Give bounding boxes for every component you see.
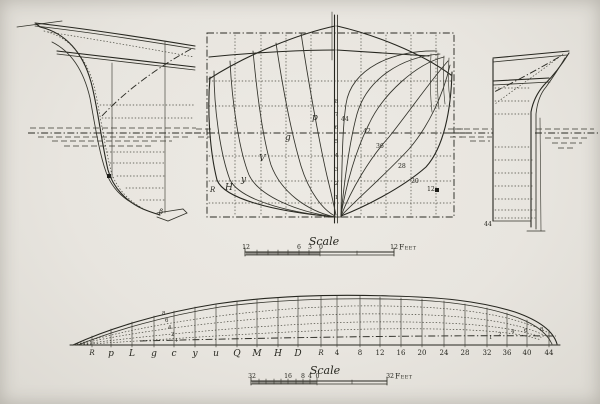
scale-tick-label: 0 — [316, 373, 320, 380]
station-label: Q — [233, 349, 241, 359]
waterline-figure: 6 — [165, 318, 169, 324]
station-label: R — [317, 349, 324, 357]
waterline-figure: 6 — [524, 328, 528, 334]
bow-forefoot-label: β — [158, 208, 163, 216]
waterline-figure: 8 — [540, 327, 544, 333]
centerline-tick: 6 — [335, 125, 339, 131]
waterline-figure: + — [174, 338, 179, 344]
half-breadth-scale-bar: Scale 32 16 8 4 0 32 Feet — [248, 364, 413, 385]
scale-title: Scale — [309, 235, 340, 248]
station-label: p — [108, 349, 114, 359]
section-label: 20 — [411, 178, 419, 185]
scale-unit-label: Feet — [399, 243, 417, 252]
scale-tick-label: 3 — [308, 244, 312, 251]
station-label: c — [171, 349, 176, 359]
station-label: L — [128, 349, 135, 359]
station-label: 32 — [483, 349, 492, 357]
scale-tick-label: 12 — [242, 244, 250, 251]
section-label: p — [312, 113, 318, 123]
reference-dot — [107, 174, 111, 178]
bow-profile-view: β — [17, 21, 197, 221]
scale-tick-label: 0 — [319, 244, 323, 251]
scale-end-label: 32 — [386, 373, 394, 380]
station-label: 44 — [545, 349, 554, 357]
waterline-figure: 2 — [498, 332, 501, 338]
section-label: 42 — [363, 128, 371, 135]
station-label: 8 — [358, 349, 362, 357]
station-label: 36 — [503, 349, 512, 357]
lines-plan-svg: β — [0, 0, 600, 404]
waterline-figure: 1 — [489, 335, 492, 341]
body-plan-view: R H y V g p 44 42 36 28 20 12 8 7 6 5 4 … — [194, 12, 465, 223]
station-label: u — [213, 349, 219, 359]
waterline-figure: 8 — [162, 311, 166, 317]
stern-profile-view: 44 — [452, 51, 598, 231]
station-label: 24 — [440, 349, 449, 357]
station-label: R — [88, 349, 95, 357]
centerline-tick: 1 — [335, 195, 338, 201]
scale-end-label: 12 — [390, 244, 398, 251]
station-label: M — [251, 349, 262, 359]
section-label: 44 — [341, 116, 349, 123]
section-label: R — [209, 186, 216, 194]
station-label: y — [191, 349, 198, 359]
section-label: 12 — [427, 186, 435, 193]
station-label: D — [293, 349, 301, 359]
station-label: g — [151, 349, 157, 359]
centerline-tick: 7 — [335, 112, 339, 118]
centerline-tick: 5 — [335, 139, 339, 145]
scale-tick-label: 32 — [248, 373, 256, 380]
lines-plan-drawing: β — [0, 0, 600, 404]
scale-tick-label: 6 — [297, 244, 301, 251]
station-label: 4 — [335, 349, 340, 357]
reference-dot — [435, 188, 439, 192]
centerline-tick: 2 — [335, 181, 338, 187]
section-label: g — [285, 133, 291, 143]
waterline-figure: 4 — [511, 329, 515, 335]
station-label: 20 — [418, 349, 427, 357]
section-label: 36 — [376, 143, 384, 150]
sternpost-label: 44 — [484, 221, 492, 228]
station-label: 12 — [376, 349, 385, 357]
centerline-tick: 4 — [335, 153, 339, 159]
scale-title: Scale — [310, 364, 341, 377]
station-label: 16 — [397, 349, 406, 357]
scale-tick-label: 4 — [308, 373, 312, 380]
half-breadth-plan-view: R p L g c y u Q M H D R 4 8 12 16 20 24 … — [70, 295, 560, 359]
section-label: 28 — [398, 163, 406, 170]
centerline-tick: 3 — [335, 167, 339, 173]
section-label: H — [224, 183, 233, 193]
station-label: 28 — [461, 349, 470, 357]
body-plan-scale-bar: Scale 12 6 3 0 12 Feet — [242, 235, 417, 256]
station-label: 40 — [523, 349, 532, 357]
section-label: y — [240, 175, 247, 185]
station-label: H — [273, 349, 282, 359]
scale-tick-label: 16 — [284, 373, 292, 380]
section-label: V — [259, 154, 267, 164]
waterline-figure: 4 — [168, 325, 172, 331]
scale-tick-label: 8 — [301, 373, 305, 380]
scale-unit-label: Feet — [395, 372, 413, 381]
centerline-tick: 8 — [335, 99, 339, 105]
